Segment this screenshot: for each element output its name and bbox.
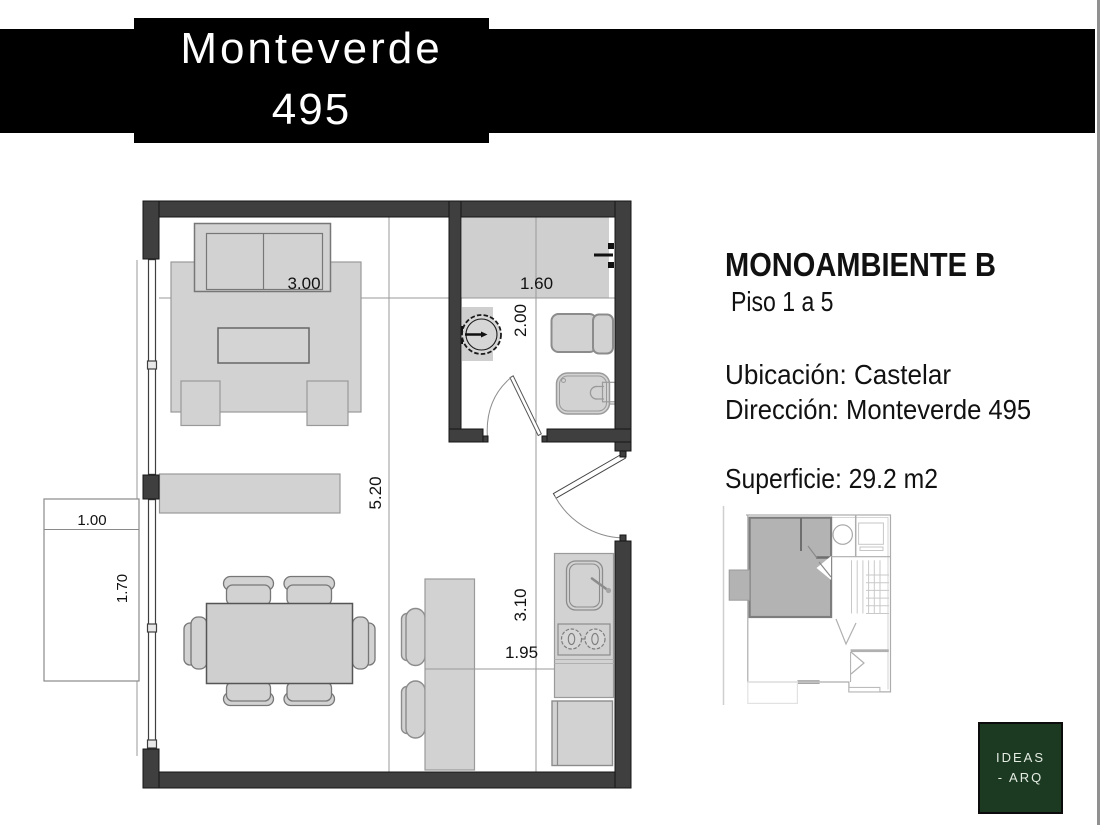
svg-text:3.10: 3.10 <box>511 588 530 621</box>
svg-text:1.60: 1.60 <box>520 274 553 293</box>
svg-text:1.95: 1.95 <box>505 643 538 662</box>
svg-text:3.00: 3.00 <box>287 274 320 293</box>
svg-text:1.70: 1.70 <box>114 574 131 603</box>
svg-text:1.00: 1.00 <box>77 512 106 529</box>
svg-text:5.20: 5.20 <box>366 476 385 509</box>
svg-text:2.00: 2.00 <box>511 304 530 337</box>
